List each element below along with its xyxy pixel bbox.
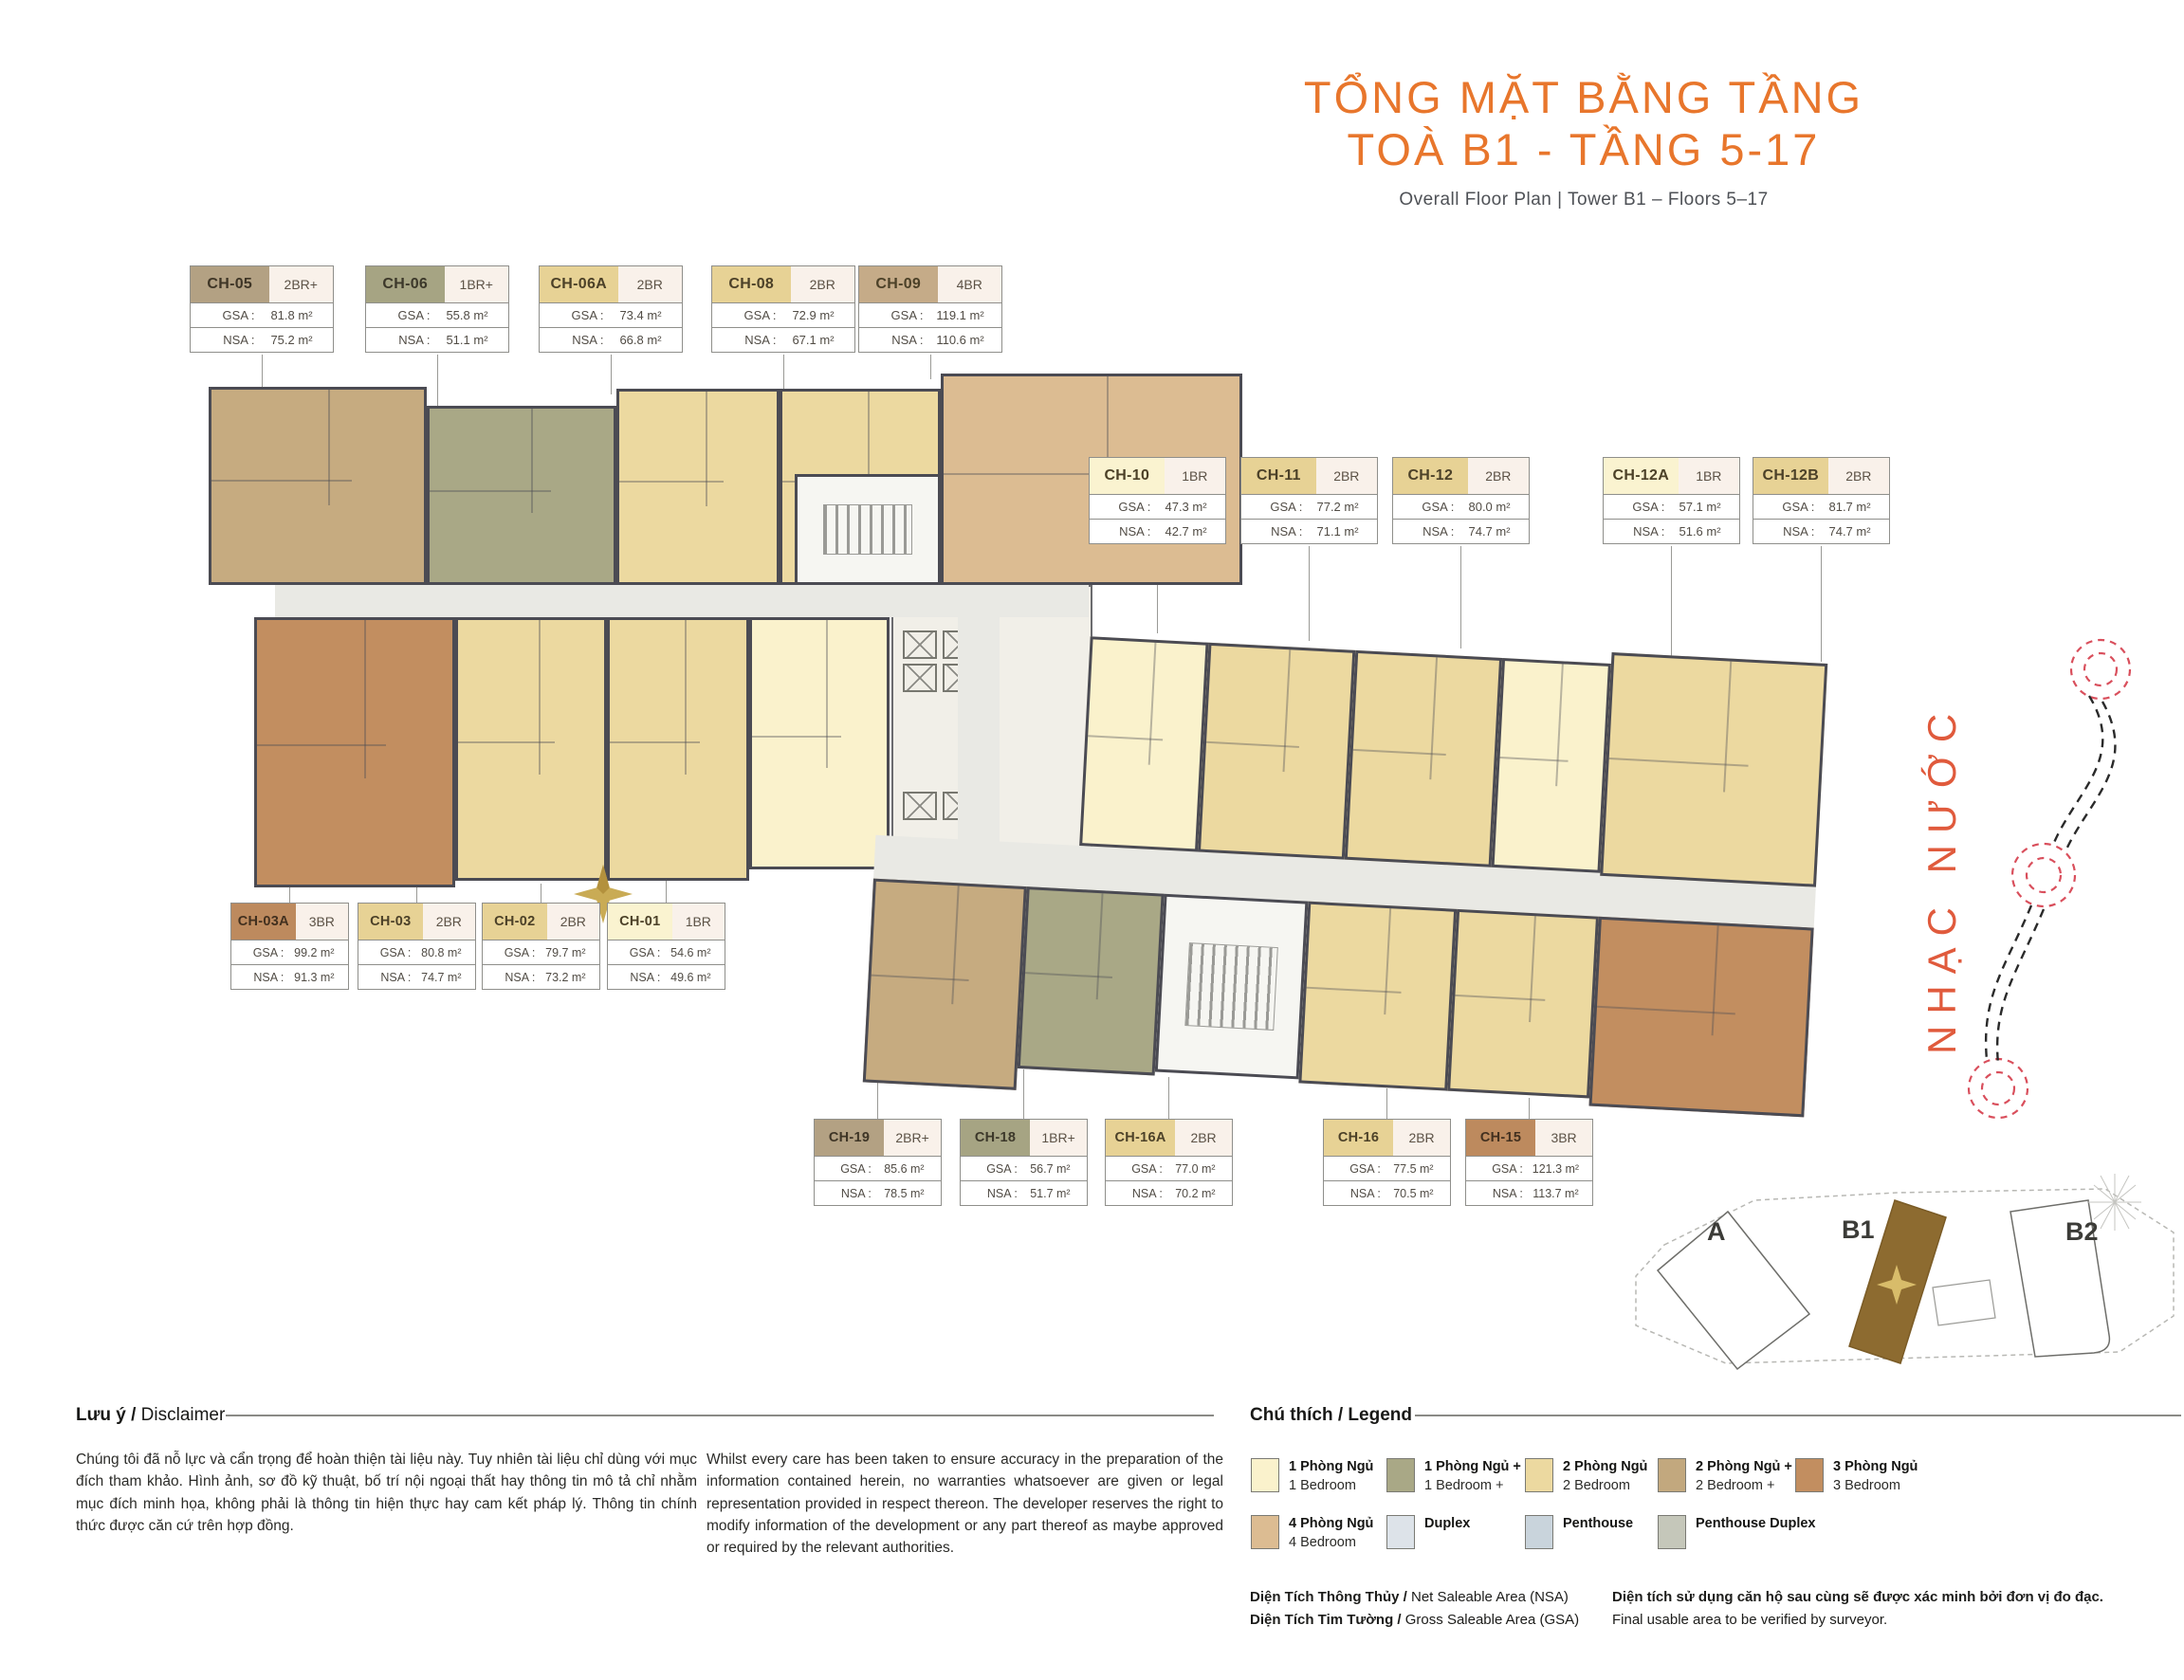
legend-swatch-penthouse-duplex	[1658, 1515, 1686, 1549]
unit-type: 2BR	[547, 904, 599, 940]
unit-card-ch-19: CH-192BR+ GSA :85.6 m² NSA :78.5 m²	[814, 1119, 942, 1206]
leader-line	[289, 887, 290, 903]
unit-card-ch-12b: CH-12B2BR GSA :81.7 m² NSA :74.7 m²	[1753, 457, 1890, 544]
nsa-value: 70.2 m²	[1163, 1187, 1228, 1200]
unit-card-ch-06a: CH-06A2BR GSA :73.4 m² NSA :66.8 m²	[539, 265, 683, 353]
gsa-label: GSA :	[1604, 500, 1664, 514]
nsa-value: 71.1 m²	[1302, 524, 1372, 539]
nsa-label: NSA :	[1393, 524, 1454, 539]
unit-code: CH-08	[712, 266, 791, 302]
leader-line	[611, 355, 612, 394]
unit-type: 2BR	[1316, 458, 1377, 494]
plan-unit-ch-01	[749, 617, 890, 869]
gsa-label: GSA :	[961, 1162, 1018, 1176]
gsa-value: 79.7 m²	[535, 946, 596, 959]
nsa-value: 67.1 m²	[777, 333, 851, 347]
stair-core-left	[795, 474, 941, 585]
gsa-label: GSA :	[366, 308, 431, 322]
plan-unit-ch-16	[1447, 909, 1599, 1099]
title-subtitle: Overall Floor Plan | Tower B1 – Floors 5…	[1290, 190, 1878, 210]
nsa-value: 49.6 m²	[660, 971, 721, 984]
gsa-definition: Diện Tích Tim Tường / Gross Saleable Are…	[1250, 1612, 1579, 1628]
legend-item-2br: 2 Phòng Ngủ2 Bedroom	[1525, 1458, 1647, 1495]
page-title: TỔNG MẶT BẰNG TẦNG TOÀ B1 - TẦNG 5-17 Ov…	[1290, 71, 1878, 210]
gsa-label: GSA :	[1090, 500, 1150, 514]
unit-code: CH-11	[1241, 458, 1316, 494]
disclaimer-heading-vi: Lưu ý /	[76, 1405, 136, 1425]
gsa-label: GSA :	[859, 308, 924, 322]
legend-heading: Chú thích / Legend	[1250, 1405, 1412, 1426]
unit-code: CH-05	[191, 266, 269, 302]
leader-line	[437, 355, 438, 411]
legend-item-1br: 1 Phòng Ngủ1 Bedroom	[1251, 1458, 1373, 1495]
unit-card-ch-12a: CH-12A1BR GSA :57.1 m² NSA :51.6 m²	[1603, 457, 1740, 544]
unit-type: 2BR+	[884, 1120, 941, 1156]
stair-core-right	[1155, 894, 1309, 1080]
stairs-icon	[823, 504, 913, 555]
legend-swatch-2br	[1525, 1458, 1553, 1492]
unit-type: 2BR	[791, 266, 855, 302]
gsa-label: GSA :	[815, 1162, 872, 1176]
unit-card-ch-16a: CH-16A2BR GSA :77.0 m² NSA :70.2 m²	[1105, 1119, 1233, 1206]
legend-swatch-duplex	[1386, 1515, 1415, 1549]
nsa-label: NSA :	[712, 333, 777, 347]
nsa-label: NSA :	[1466, 1187, 1523, 1200]
unit-card-ch-12: CH-122BR GSA :80.0 m² NSA :74.7 m²	[1392, 457, 1530, 544]
legend-swatch-4br	[1251, 1515, 1279, 1549]
nsa-value: 113.7 m²	[1523, 1187, 1588, 1200]
gsa-label: GSA :	[1324, 1162, 1381, 1176]
nsa-value: 70.5 m²	[1381, 1187, 1446, 1200]
gsa-value: 55.8 m²	[431, 308, 505, 322]
leader-line	[1671, 546, 1672, 658]
divider	[226, 1415, 1214, 1416]
gsa-value: 81.8 m²	[255, 308, 329, 322]
leader-line	[541, 884, 541, 903]
title-line1: TỔNG MẶT BẰNG TẦNG	[1290, 71, 1878, 123]
nsa-label: NSA :	[1090, 524, 1150, 539]
plan-unit-ch-06a	[616, 389, 780, 585]
unit-card-ch-01: CH-011BR GSA :54.6 m² NSA :49.6 m²	[607, 903, 725, 990]
nsa-label: NSA :	[191, 333, 255, 347]
nsa-value: 78.5 m²	[872, 1187, 937, 1200]
unit-type: 1BR	[672, 904, 725, 940]
unit-card-ch-03: CH-032BR GSA :80.8 m² NSA :74.7 m²	[358, 903, 476, 990]
plan-unit-ch-12b	[1600, 652, 1827, 887]
pool-outline	[1933, 1280, 1995, 1325]
unit-type: 2BR	[1175, 1120, 1232, 1156]
legend-item-penthouse: Penthouse	[1525, 1515, 1633, 1549]
plan-unit-ch-18	[1018, 886, 1165, 1075]
unit-type: 3BR	[296, 904, 348, 940]
legend-swatch-penthouse	[1525, 1515, 1553, 1549]
gsa-value: 57.1 m²	[1664, 500, 1734, 514]
gsa-value: 56.7 m²	[1018, 1162, 1083, 1176]
unit-type: 1BR+	[445, 266, 509, 302]
unit-type: 2BR	[1828, 458, 1889, 494]
gsa-label: GSA :	[191, 308, 255, 322]
unit-code: CH-19	[815, 1120, 884, 1156]
nsa-label: NSA :	[1324, 1187, 1381, 1200]
plan-unit-ch-05	[209, 387, 427, 585]
unit-code: CH-09	[859, 266, 938, 302]
gsa-value: 77.2 m²	[1302, 500, 1372, 514]
nsa-value: 51.6 m²	[1664, 524, 1734, 539]
plan-unit-ch-10	[1079, 636, 1208, 851]
unit-code: CH-03A	[231, 904, 296, 940]
gsa-label: GSA :	[712, 308, 777, 322]
nsa-label: NSA :	[540, 333, 604, 347]
gsa-label: GSA :	[608, 946, 660, 959]
disclaimer-text-vi: Chúng tôi đã nỗ lực và cẩn trọng để hoàn…	[76, 1449, 697, 1537]
nsa-value: 51.7 m²	[1018, 1187, 1083, 1200]
gsa-value: 77.0 m²	[1163, 1162, 1228, 1176]
unit-code: CH-06	[366, 266, 445, 302]
nsa-label: NSA :	[358, 971, 411, 984]
unit-card-ch-05: CH-052BR+ GSA :81.8 m² NSA :75.2 m²	[190, 265, 334, 353]
nsa-value: 75.2 m²	[255, 333, 329, 347]
nsa-label: NSA :	[1753, 524, 1814, 539]
gsa-value: 80.0 m²	[1454, 500, 1524, 514]
nsa-label: NSA :	[859, 333, 924, 347]
legend-item-1brp: 1 Phòng Ngủ +1 Bedroom +	[1386, 1458, 1521, 1495]
survey-note-en: Final usable area to be verified by surv…	[1612, 1612, 1887, 1628]
tower-b2-label: B2	[2065, 1217, 2099, 1246]
divider	[1415, 1415, 2181, 1416]
unit-card-ch-10: CH-101BR GSA :47.3 m² NSA :42.7 m²	[1089, 457, 1226, 544]
unit-type: 2BR	[1393, 1120, 1450, 1156]
nsa-label: NSA :	[483, 971, 535, 984]
nsa-label: NSA :	[1106, 1187, 1163, 1200]
gsa-value: 99.2 m²	[284, 946, 344, 959]
nsa-label: NSA :	[231, 971, 284, 984]
legend-swatch-1br	[1251, 1458, 1279, 1492]
nsa-value: 74.7 m²	[411, 971, 471, 984]
water-music-label: NHẠC NƯỚC	[1919, 618, 1965, 1054]
gsa-value: 77.5 m²	[1381, 1162, 1446, 1176]
tower-b1-label: B1	[1842, 1215, 1875, 1244]
gsa-value: 47.3 m²	[1150, 500, 1220, 514]
gsa-label: GSA :	[231, 946, 284, 959]
unit-card-ch-03a: CH-03A3BR GSA :99.2 m² NSA :91.3 m²	[230, 903, 349, 990]
disclaimer-heading-en: Disclaimer	[136, 1405, 225, 1425]
unit-type: 3BR	[1535, 1120, 1592, 1156]
nsa-value: 51.1 m²	[431, 333, 505, 347]
fountain-path-icon	[1949, 595, 2184, 1136]
plan-unit-ch-12a	[1492, 658, 1611, 873]
unit-card-ch-09: CH-094BR GSA :119.1 m² NSA :110.6 m²	[858, 265, 1002, 353]
nsa-value: 42.7 m²	[1150, 524, 1220, 539]
unit-code: CH-18	[961, 1120, 1030, 1156]
gsa-label: GSA :	[1466, 1162, 1523, 1176]
gsa-label: GSA :	[1106, 1162, 1163, 1176]
gsa-value: 85.6 m²	[872, 1162, 937, 1176]
unit-code: CH-12	[1393, 458, 1468, 494]
unit-type: 1BR	[1679, 458, 1739, 494]
unit-code: CH-16	[1324, 1120, 1393, 1156]
nsa-value: 73.2 m²	[535, 971, 596, 984]
nsa-label: NSA :	[961, 1187, 1018, 1200]
floor-plan-page: TỔNG MẶT BẰNG TẦNG TOÀ B1 - TẦNG 5-17 Ov…	[0, 0, 2184, 1680]
plan-unit-ch-19	[863, 879, 1027, 1090]
tower-a-label: A	[1707, 1217, 1726, 1246]
stairs-icon	[1185, 942, 1278, 1030]
unit-code: CH-12A	[1604, 458, 1679, 494]
unit-card-ch-16: CH-162BR GSA :77.5 m² NSA :70.5 m²	[1323, 1119, 1451, 1206]
gsa-label: GSA :	[1241, 500, 1302, 514]
legend-item-duplex: Duplex	[1386, 1515, 1470, 1549]
plan-unit-ch-02	[607, 617, 749, 881]
gsa-value: 54.6 m²	[660, 946, 721, 959]
gsa-label: GSA :	[483, 946, 535, 959]
site-key-plan: A B1 B2	[1612, 1174, 2181, 1387]
unit-type: 2BR	[618, 266, 683, 302]
nsa-label: NSA :	[1604, 524, 1664, 539]
unit-code: CH-01	[608, 904, 672, 940]
unit-card-ch-11: CH-112BR GSA :77.2 m² NSA :71.1 m²	[1240, 457, 1378, 544]
legend-swatch-3br	[1795, 1458, 1824, 1492]
plan-unit-ch-16a	[1298, 902, 1457, 1091]
leader-line	[930, 355, 931, 379]
gsa-label: GSA :	[358, 946, 411, 959]
plan-unit-ch-03a	[254, 617, 455, 887]
plan-unit-ch-12	[1345, 650, 1502, 867]
nsa-label: NSA :	[366, 333, 431, 347]
gsa-value: 80.8 m²	[411, 946, 471, 959]
unit-card-ch-06: CH-061BR+ GSA :55.8 m² NSA :51.1 m²	[365, 265, 509, 353]
unit-card-ch-08: CH-082BR GSA :72.9 m² NSA :67.1 m²	[711, 265, 855, 353]
unit-card-ch-15: CH-153BR GSA :121.3 m² NSA :113.7 m²	[1465, 1119, 1593, 1206]
corridor-left-wing	[275, 585, 1089, 617]
legend-swatch-2brp	[1658, 1458, 1686, 1492]
nsa-label: NSA :	[1241, 524, 1302, 539]
nsa-value: 74.7 m²	[1814, 524, 1884, 539]
nsa-value: 110.6 m²	[924, 333, 998, 347]
unit-code: CH-10	[1090, 458, 1165, 494]
legend-item-2brp: 2 Phòng Ngủ +2 Bedroom +	[1658, 1458, 1792, 1495]
nsa-value: 66.8 m²	[604, 333, 678, 347]
gsa-label: GSA :	[1393, 500, 1454, 514]
gsa-value: 72.9 m²	[777, 308, 851, 322]
nsa-value: 74.7 m²	[1454, 524, 1524, 539]
plan-unit-ch-11	[1198, 643, 1355, 860]
unit-type: 1BR+	[1030, 1120, 1087, 1156]
tower-a-outline	[1658, 1212, 1809, 1369]
disclaimer-heading: Lưu ý / Disclaimer	[76, 1405, 225, 1426]
unit-code: CH-03	[358, 904, 423, 940]
unit-type: 2BR	[423, 904, 475, 940]
nsa-value: 91.3 m²	[284, 971, 344, 984]
unit-code: CH-15	[1466, 1120, 1535, 1156]
unit-code: CH-16A	[1106, 1120, 1175, 1156]
gsa-label: GSA :	[1753, 500, 1814, 514]
unit-type: 1BR	[1165, 458, 1225, 494]
legend-swatch-1brp	[1386, 1458, 1415, 1492]
right-wing-group	[862, 626, 1828, 1139]
unit-type: 2BR+	[269, 266, 334, 302]
unit-code: CH-12B	[1753, 458, 1828, 494]
gsa-label: GSA :	[540, 308, 604, 322]
plan-unit-ch-03	[455, 617, 607, 881]
nsa-label: NSA :	[608, 971, 660, 984]
legend-item-penthouse-duplex: Penthouse Duplex	[1658, 1515, 1816, 1549]
nsa-label: NSA :	[815, 1187, 872, 1200]
survey-note-vi: Diện tích sử dụng căn hộ sau cùng sẽ đượ…	[1612, 1589, 2103, 1605]
plan-unit-ch-15	[1589, 917, 1814, 1118]
unit-card-ch-02: CH-022BR GSA :79.7 m² NSA :73.2 m²	[482, 903, 600, 990]
gsa-value: 119.1 m²	[924, 308, 998, 322]
leader-line	[1821, 546, 1822, 662]
unit-code: CH-02	[483, 904, 547, 940]
unit-type: 2BR	[1468, 458, 1529, 494]
leader-line	[1309, 546, 1310, 641]
plan-unit-ch-06	[427, 406, 616, 585]
title-line2: TOÀ B1 - TẦNG 5-17	[1290, 123, 1878, 175]
unit-card-ch-18: CH-181BR+ GSA :56.7 m² NSA :51.7 m²	[960, 1119, 1088, 1206]
leader-line	[1460, 546, 1461, 648]
gsa-value: 73.4 m²	[604, 308, 678, 322]
unit-type: 4BR	[938, 266, 1002, 302]
legend-item-3br: 3 Phòng Ngủ3 Bedroom	[1795, 1458, 1918, 1495]
unit-code: CH-06A	[540, 266, 618, 302]
nsa-definition: Diện Tích Thông Thủy / Net Saleable Area…	[1250, 1589, 1569, 1605]
disclaimer-text-en: Whilst every care has been taken to ensu…	[707, 1449, 1223, 1559]
legend-item-4br: 4 Phòng Ngủ4 Bedroom	[1251, 1515, 1373, 1552]
gsa-value: 81.7 m²	[1814, 500, 1884, 514]
gsa-value: 121.3 m²	[1523, 1162, 1588, 1176]
